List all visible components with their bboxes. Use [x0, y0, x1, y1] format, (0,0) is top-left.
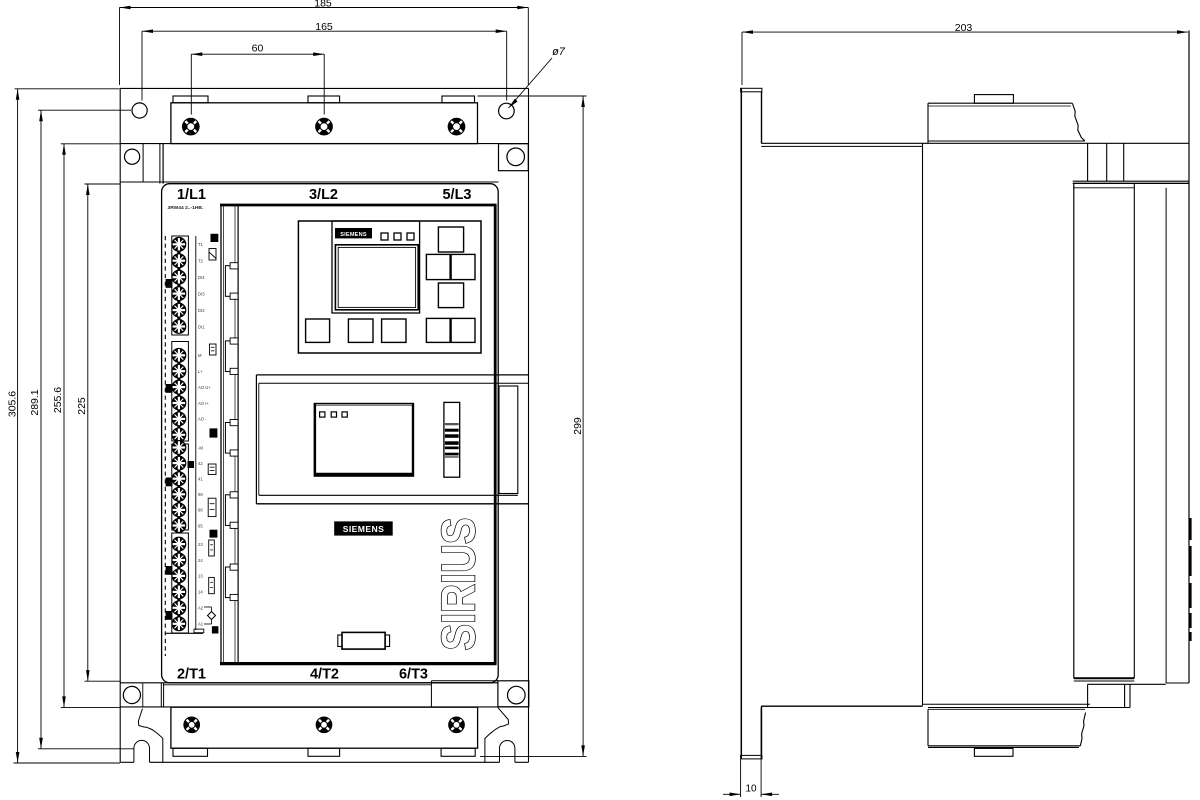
svg-text:24: 24	[198, 558, 203, 563]
svg-text:ø7: ø7	[552, 46, 566, 58]
svg-text:AO U+: AO U+	[198, 385, 211, 390]
svg-text:305.6: 305.6	[6, 391, 18, 417]
svg-text:DI1: DI1	[198, 324, 205, 329]
svg-text:60: 60	[252, 43, 264, 55]
svg-text:10: 10	[745, 783, 757, 794]
svg-text:T1: T1	[198, 242, 204, 247]
svg-text:AO I+: AO I+	[198, 401, 209, 406]
svg-text:DI4: DI4	[198, 275, 205, 280]
svg-text:6/T3: 6/T3	[399, 666, 428, 682]
svg-text:SIEMENS: SIEMENS	[343, 524, 384, 534]
svg-text:13: 13	[198, 574, 203, 579]
svg-text:A2: A2	[198, 606, 204, 611]
svg-text:165: 165	[315, 21, 333, 33]
svg-text:DI2: DI2	[198, 308, 205, 313]
svg-text:T2: T2	[198, 259, 204, 264]
svg-text:299: 299	[572, 417, 584, 435]
svg-text:3RW44 2..-1HB.: 3RW44 2..-1HB.	[168, 205, 204, 211]
svg-text:95: 95	[198, 523, 203, 528]
svg-text:5/L3: 5/L3	[442, 187, 471, 203]
svg-text:98: 98	[198, 492, 203, 497]
svg-text:SIRIUS: SIRIUS	[432, 518, 485, 651]
svg-text:4/T2: 4/T2	[310, 666, 339, 682]
svg-text:2/T1: 2/T1	[177, 666, 206, 682]
svg-text:3/L2: 3/L2	[309, 187, 338, 203]
svg-text:DI3: DI3	[198, 291, 205, 296]
svg-text:42: 42	[198, 461, 203, 466]
svg-text:14: 14	[198, 590, 203, 595]
svg-text:AO -: AO -	[198, 417, 207, 422]
svg-text:1/L1: 1/L1	[177, 187, 206, 203]
svg-text:M: M	[198, 353, 202, 358]
svg-text:L+: L+	[198, 369, 203, 374]
svg-text:A1: A1	[198, 622, 204, 627]
svg-text:203: 203	[955, 22, 973, 34]
svg-text:-M: -M	[198, 445, 203, 450]
svg-text:41: 41	[198, 477, 203, 482]
svg-text:96: 96	[198, 508, 203, 513]
svg-text:289.1: 289.1	[29, 389, 41, 415]
svg-text:225: 225	[76, 397, 88, 415]
svg-text:255.6: 255.6	[52, 387, 64, 413]
svg-text:23: 23	[198, 542, 203, 547]
svg-text:SIEMENS: SIEMENS	[340, 232, 367, 238]
svg-text:185: 185	[314, 0, 332, 10]
